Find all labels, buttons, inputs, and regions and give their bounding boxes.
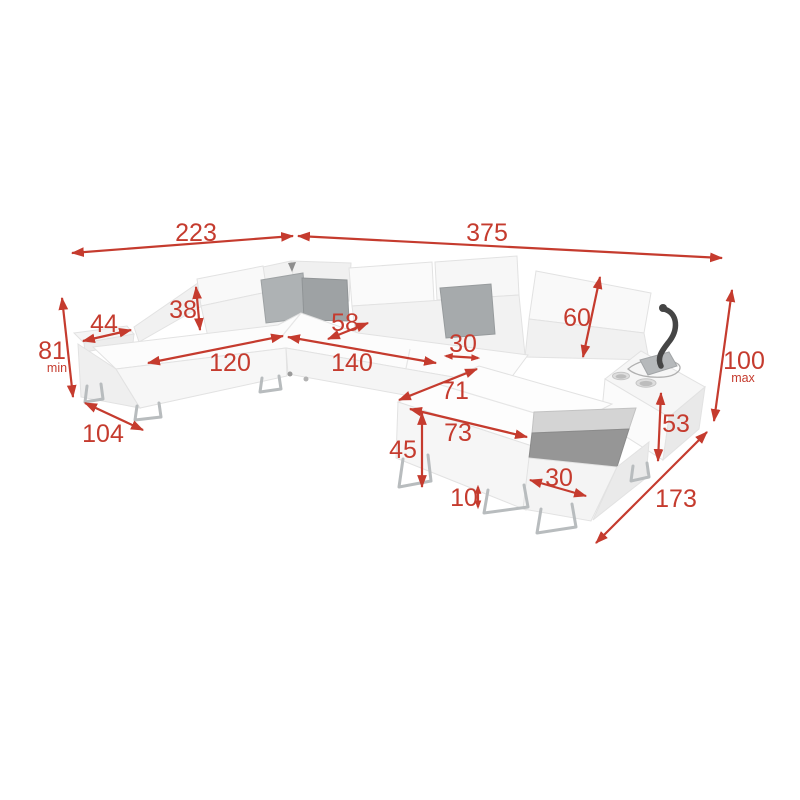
- dim-label-armrest-height: 53: [662, 410, 690, 438]
- dim-label-headrest-height: 38: [169, 296, 197, 324]
- dim-label-middle-seat-length: 140: [331, 349, 373, 377]
- caster: [288, 372, 293, 377]
- middle-headrest-left: [349, 262, 434, 306]
- dim-label-storage-width: 30: [545, 464, 573, 492]
- dim-label-seat-section-width: 30: [449, 330, 477, 358]
- dim-label-right-side-depth: 173: [655, 485, 697, 513]
- cupholder-hole: [616, 374, 627, 378]
- dim-label-leg-height: 10: [450, 484, 478, 512]
- dim-label-backrest-height: 60: [563, 304, 591, 332]
- dim-label-corner-seat-width: 58: [331, 309, 359, 337]
- dim-label-chaise-width: 104: [82, 420, 124, 448]
- caster: [304, 377, 309, 382]
- dim-label-bed-section-width: 71: [441, 377, 469, 405]
- dim-label-chaise-seat-length: 120: [209, 349, 251, 377]
- cupholder-hole: [640, 381, 653, 386]
- phone-holder-tip: [659, 304, 667, 312]
- dim-label-height-max-suffix: max: [731, 371, 755, 385]
- dim-label-bed-section-length: 73: [444, 419, 472, 447]
- diagram-canvas: 223 375 81 min 44 38 120 104 58 140 30 6…: [0, 0, 800, 800]
- dim-arrow-back-width-right: [298, 236, 722, 258]
- dim-label-height-min-suffix: min: [47, 361, 67, 375]
- dim-label-armrest-width: 44: [90, 310, 118, 338]
- dim-label-base-height: 45: [389, 436, 417, 464]
- dim-label-back-width-right: 375: [466, 219, 508, 247]
- dim-label-back-width-left: 223: [175, 219, 217, 247]
- sofa-dimension-diagram: 223 375 81 min 44 38 120 104 58 140 30 6…: [0, 0, 800, 800]
